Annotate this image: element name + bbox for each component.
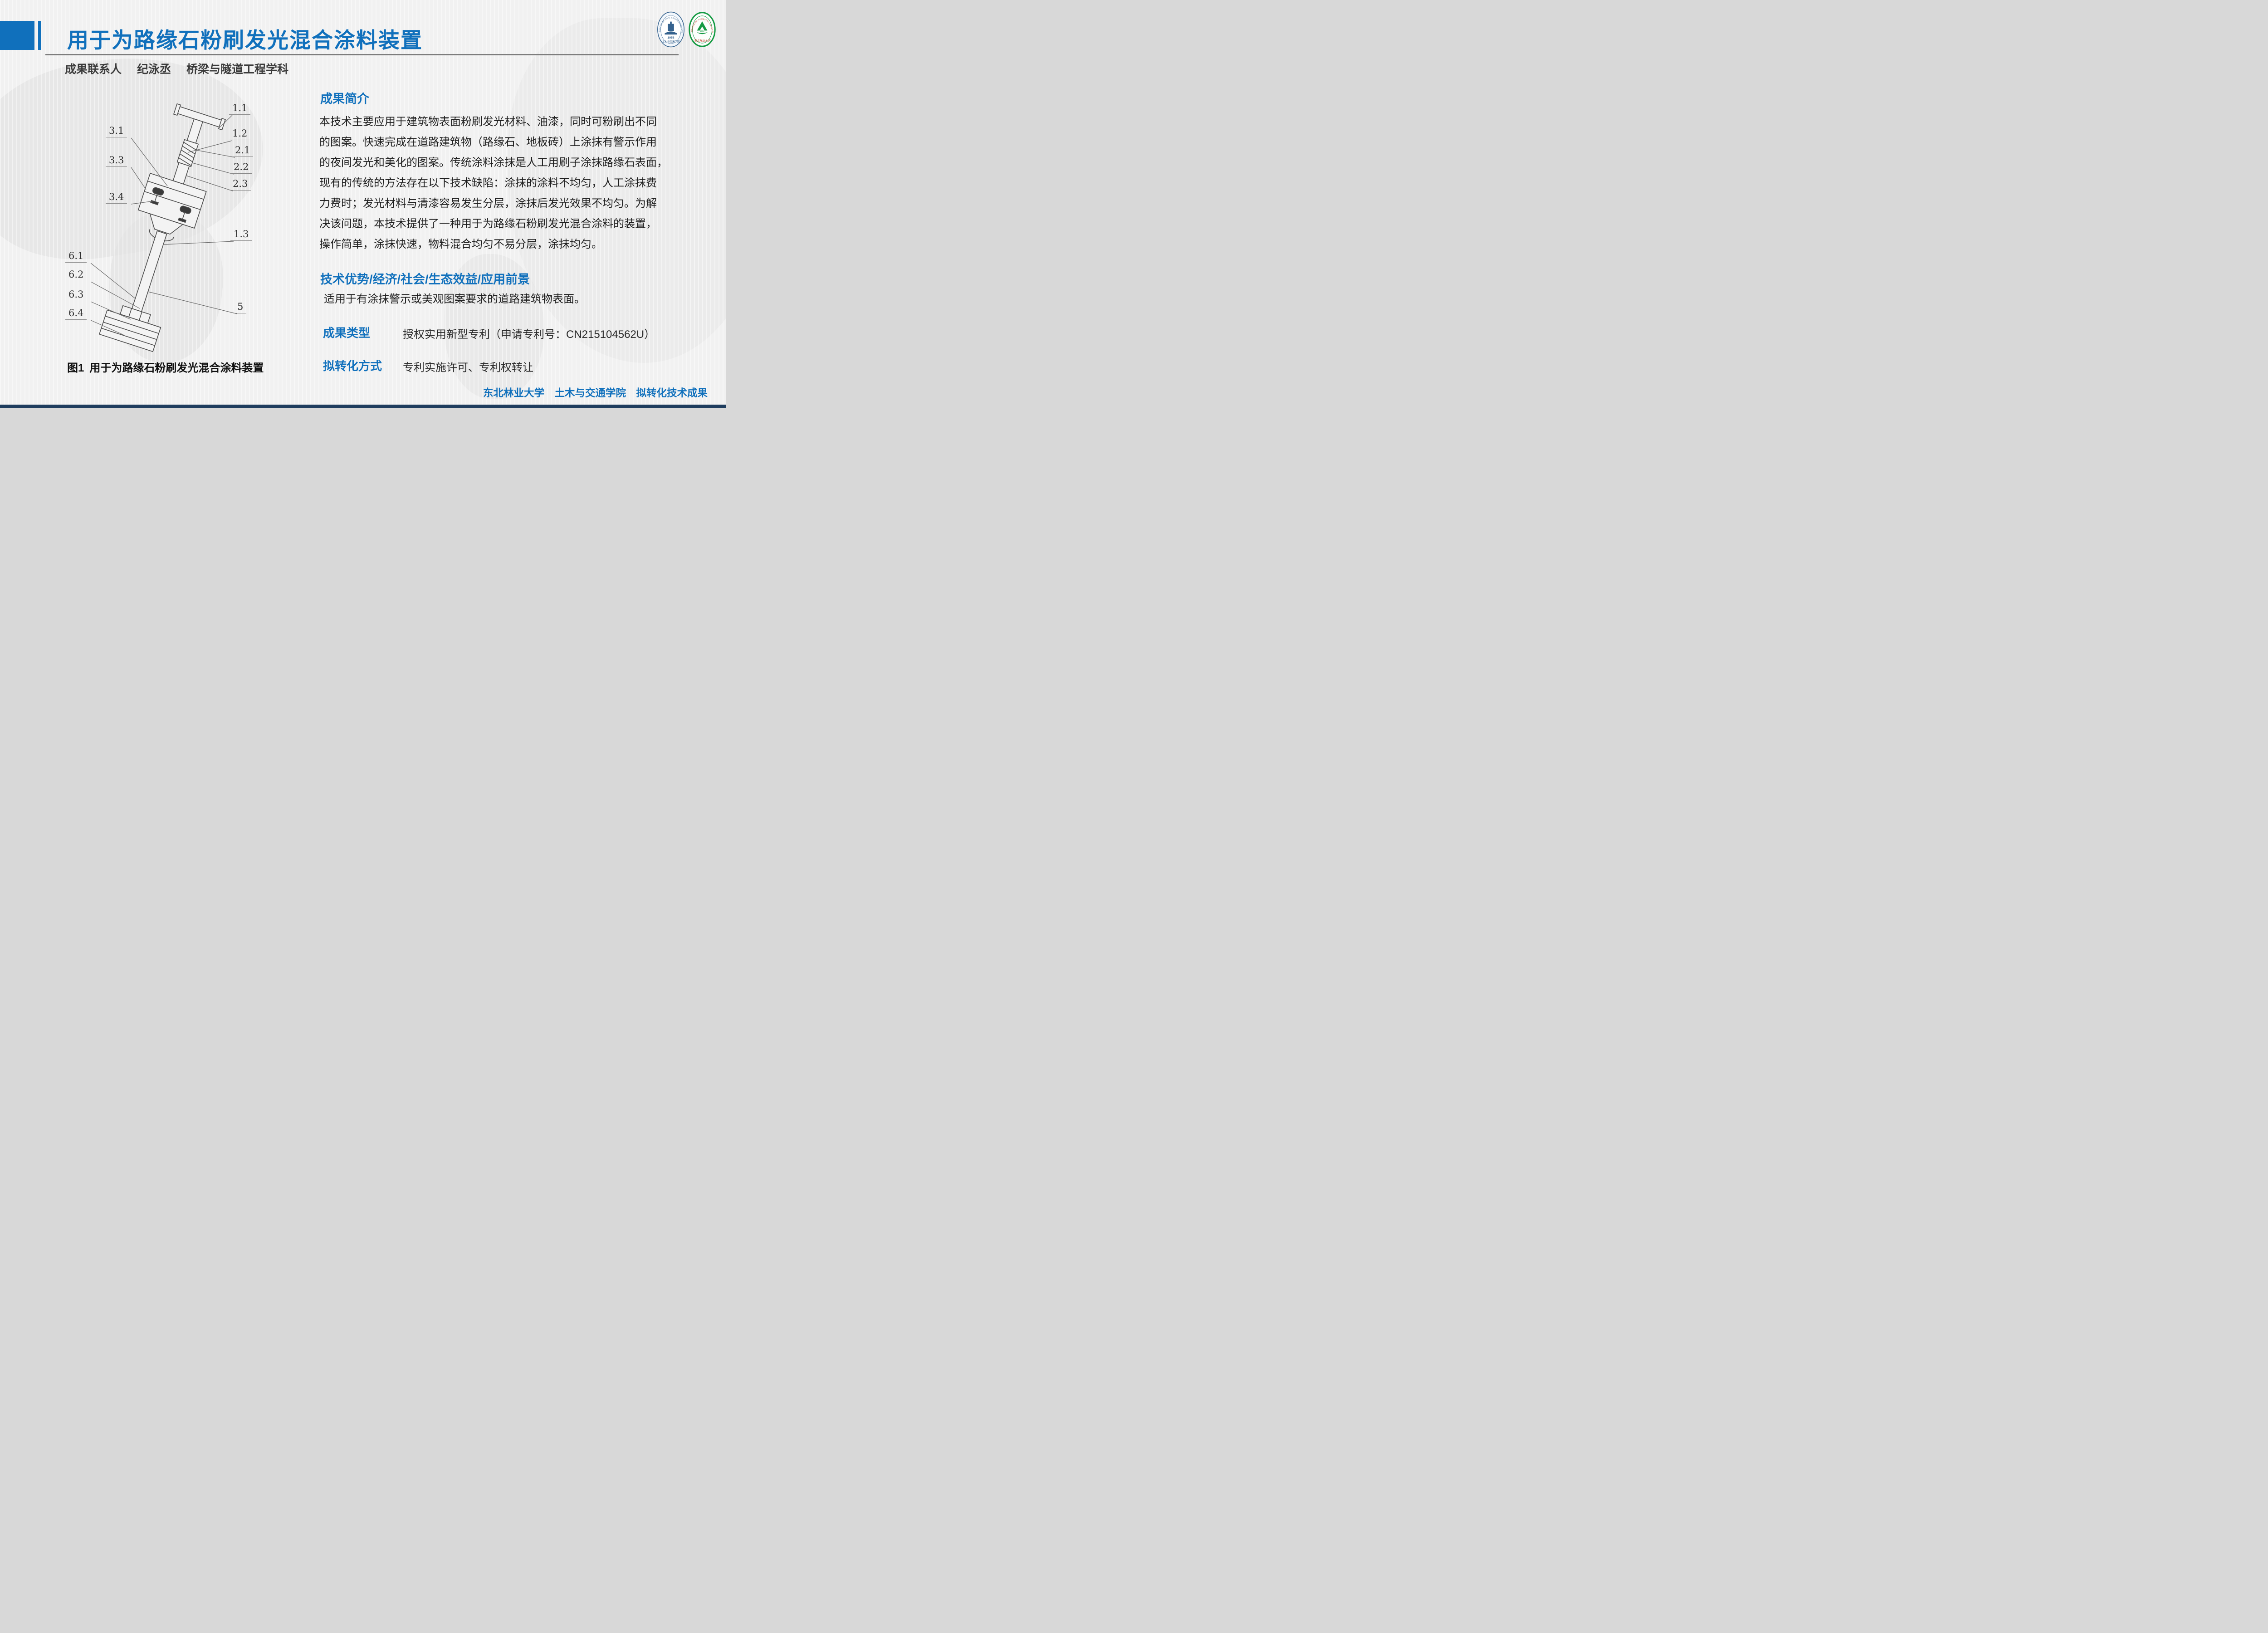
intro-line: 的夜间发光和美化的图案。传统涂料涂抹是人工用刷子涂抹路缘石表面， [319,152,687,173]
college-logo: SCHOOL OF CIVIL ENGINEERING AND TRANSPOR… [657,11,685,48]
slide: 用于为路缘石粉刷发光混合涂料装置 成果联系人纪泳丞桥梁与隧道工程学科 SCHOO… [0,0,726,408]
part-label-2-2: 2.2 [230,161,252,174]
contact-name: 纪泳丞 [137,63,171,76]
intro-line: 的图案。快速完成在道路建筑物（路缘石、地板砖）上涂抹有警示作用 [319,132,687,152]
benefits-heading: 技术优势/经济/社会/生态效益/应用前景 [320,269,530,287]
transfer-mode-label: 拟转化方式 [323,357,382,374]
part-label-1-3: 1.3 [230,228,252,241]
part-label-6-3: 6.3 [65,288,87,301]
part-label-6-4: 6.4 [65,307,87,320]
intro-line: 操作简单，涂抹快速，物料混合均匀不易分层，涂抹均匀。 [319,234,687,254]
patent-drawing [59,85,313,365]
intro-heading: 成果简介 [320,89,369,107]
intro-line: 力费时；发光材料与清漆容易发生分层，涂抹后发光效果不均匀。为解 [319,193,687,214]
benefits-body: 适用于有涂抹警示或美观图案要求的道路建筑物表面。 [324,290,585,306]
intro-line: 本技术主要应用于建筑物表面粉刷发光材料、油漆，同时可粉刷出不同 [319,112,687,132]
intro-line: 决该问题，本技术提供了一种用于为路缘石粉刷发光混合涂料的装置， [319,214,687,234]
accent-bar [38,21,41,50]
university-logo: NORTHEAST FORESTRY UNIVERSITY 1952 东北林业大… [689,11,716,48]
handle-shaft [187,119,202,143]
title-divider [45,54,679,55]
intro-paragraph: 本技术主要应用于建筑物表面粉刷发光材料、油漆，同时可粉刷出不同 的图案。快速完成… [319,112,687,254]
part-label-1-1: 1.1 [229,102,250,115]
part-label-2-3: 2.3 [230,178,251,191]
bottom-accent-bar [0,405,726,408]
part-label-5: 5 [234,301,246,313]
part-label-6-1: 6.1 [65,250,87,263]
figure-caption-number: 图1 [67,362,84,374]
result-type-label: 成果类型 [323,324,370,341]
intro-line: 现有的传统的方法存在以下技术缺陷：涂抹的涂料不均匀，人工涂抹费 [319,173,687,193]
tube [132,231,167,312]
part-label-1-2: 1.2 [229,127,250,140]
contact-dept: 桥梁与隧道工程学科 [186,63,288,76]
university-year: 1952 [700,30,704,32]
footer-text: 东北林业大学 土木与交通学院 拟转化技术成果 [483,385,708,400]
thread-section [177,140,199,166]
part-label-6-2: 6.2 [65,269,87,281]
part-label-3-1: 3.1 [106,125,127,137]
part-label-3-3: 3.3 [106,154,127,167]
patent-figure: 1.1 1.2 2.1 2.2 2.3 1.3 5 3.1 3.3 3.4 6.… [59,85,313,365]
result-type-value: 授权实用新型专利（申请专利号：CN215104562U） [403,325,655,341]
barrel [173,162,190,184]
part-label-2-1: 2.1 [232,144,253,157]
transfer-mode-value: 专利实施许可、专利权转让 [403,358,533,374]
accent-square [0,21,34,50]
contact-label: 成果联系人 [65,63,122,76]
figure-caption: 图1用于为路缘石粉刷发光混合涂料装置 [67,359,264,375]
page-title: 用于为路缘石粉刷发光混合涂料装置 [67,23,423,54]
college-year: 1958 [667,36,674,39]
contact-line: 成果联系人纪泳丞桥梁与隧道工程学科 [65,60,304,77]
figure-caption-text: 用于为路缘石粉刷发光混合涂料装置 [89,362,264,374]
part-label-3-4: 3.4 [106,191,127,204]
